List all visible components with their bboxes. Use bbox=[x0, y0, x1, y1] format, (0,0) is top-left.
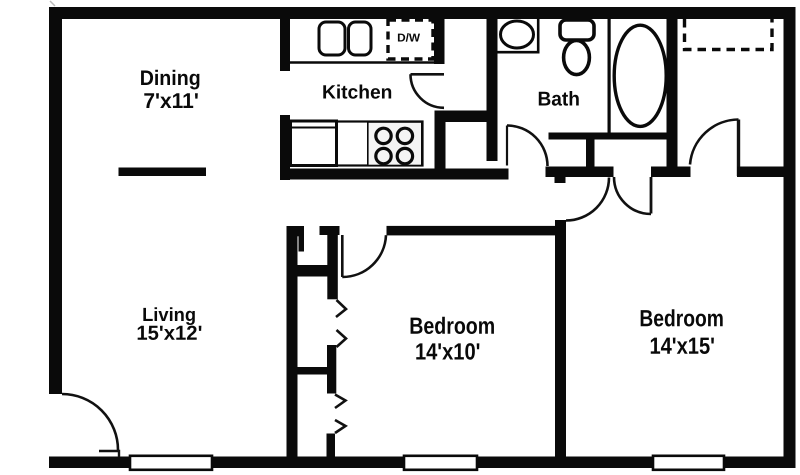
svg-text:D/W: D/W bbox=[397, 32, 420, 44]
svg-text:14'x10': 14'x10' bbox=[415, 338, 481, 364]
svg-text:Kitchen: Kitchen bbox=[322, 82, 393, 103]
svg-text:Dining: Dining bbox=[140, 67, 201, 90]
svg-text:14'x15': 14'x15' bbox=[649, 333, 715, 359]
svg-text:15'x12': 15'x12' bbox=[136, 323, 202, 345]
svg-text:Bedroom: Bedroom bbox=[639, 305, 724, 331]
svg-text:Bath: Bath bbox=[537, 88, 580, 110]
svg-text:7'x11': 7'x11' bbox=[143, 89, 199, 113]
svg-text:Bedroom: Bedroom bbox=[409, 313, 495, 339]
